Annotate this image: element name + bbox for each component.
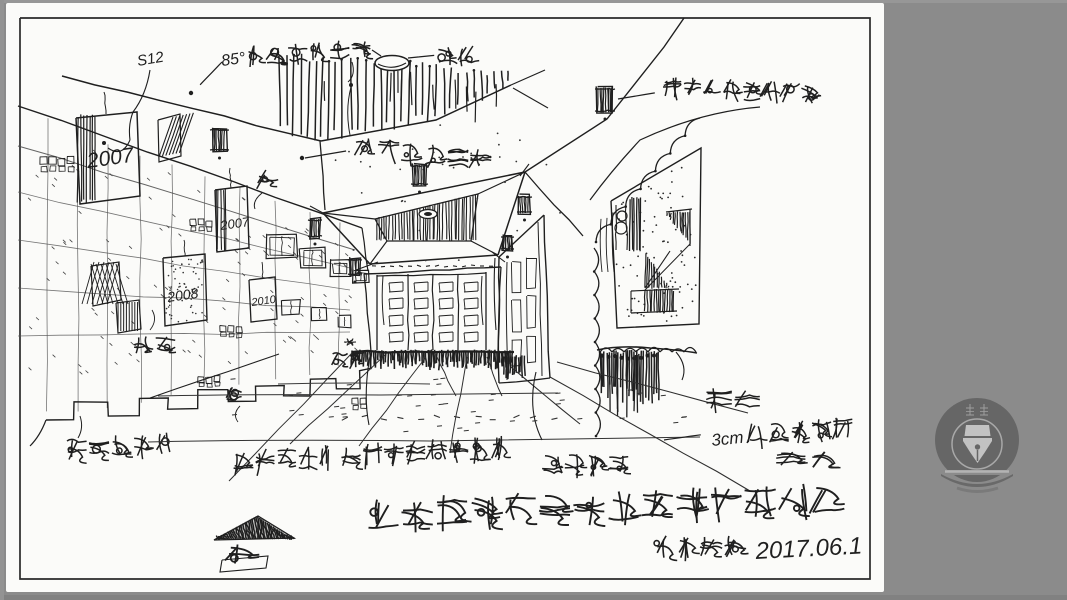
svg-text:85°: 85° [220,50,247,70]
svg-text:2017.06.1: 2017.06.1 [754,532,863,565]
svg-text:3cm: 3cm [710,428,744,450]
